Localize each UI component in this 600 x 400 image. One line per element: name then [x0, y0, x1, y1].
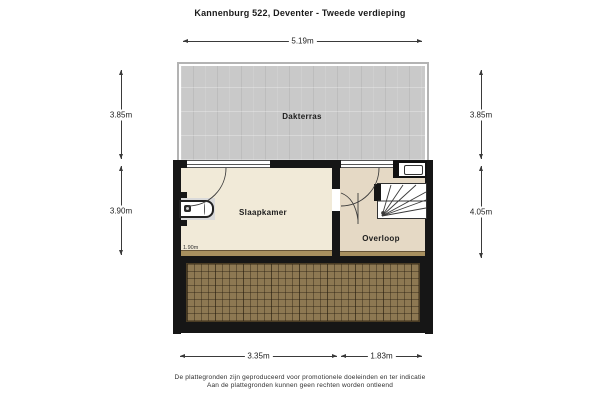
disclaimer-line1: De plattegronden zijn geproduceerd voor …	[0, 374, 600, 381]
floorplan: Dakterras Slaapkamer Overloop 1.90m	[0, 0, 600, 400]
ceiling-height-label: 1.90m	[183, 245, 198, 251]
stair-newel	[374, 184, 381, 201]
wall	[173, 322, 433, 333]
window	[187, 160, 270, 168]
window	[341, 160, 393, 168]
wall	[173, 256, 433, 263]
disclaimer-line2: Aan de plattegronden kunnen geen rechten…	[0, 382, 600, 389]
wall	[173, 263, 186, 322]
stairs-icon	[377, 183, 427, 219]
roof-hatch	[186, 263, 420, 322]
tap-icon	[184, 205, 191, 212]
skylight-pane	[404, 165, 423, 175]
skylight-icon	[393, 161, 427, 178]
room-label-dakterras: Dakterras	[240, 112, 364, 121]
wall	[420, 263, 433, 322]
room-label-slaapkamer: Slaapkamer	[203, 208, 323, 217]
room-label-overloop: Overloop	[331, 234, 431, 243]
wall-divider	[332, 162, 340, 189]
